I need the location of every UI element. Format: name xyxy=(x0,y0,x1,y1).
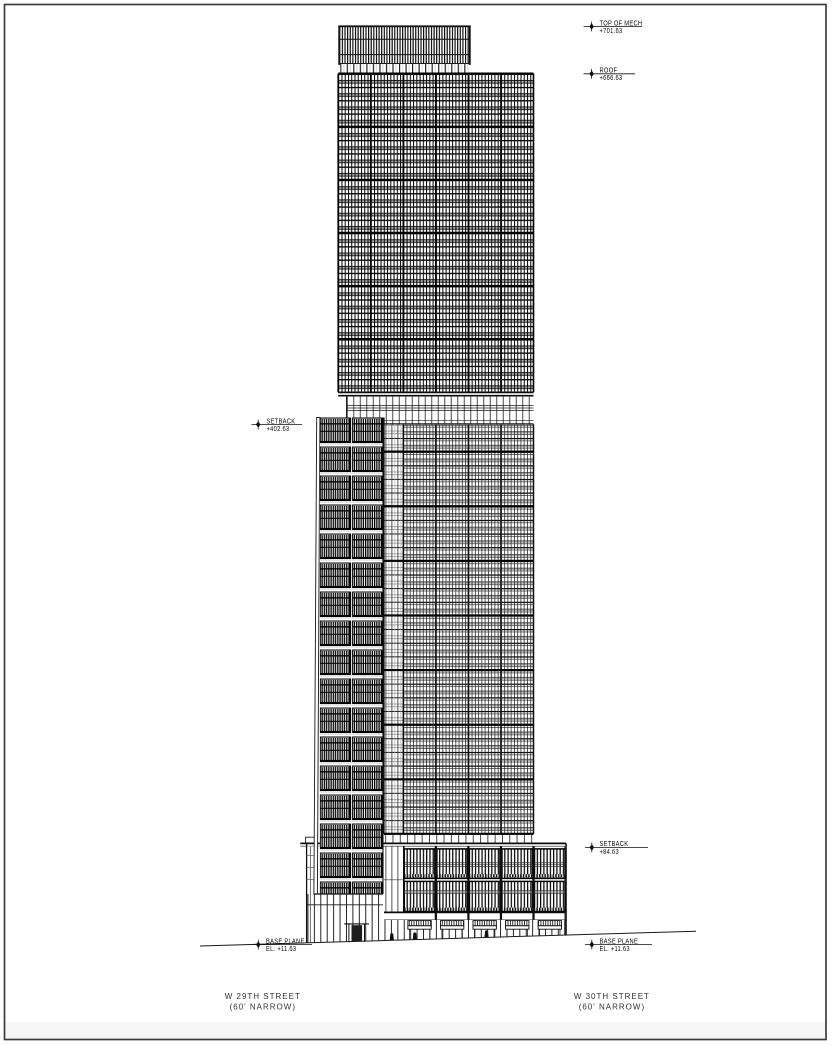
svg-text:+402.63: +402.63 xyxy=(267,425,290,433)
svg-text:EL. +11.63: EL. +11.63 xyxy=(600,945,630,953)
svg-text:(60' NARROW): (60' NARROW) xyxy=(230,1003,296,1012)
svg-text:EL. +11.63: EL. +11.63 xyxy=(266,945,296,953)
svg-text:+701.63: +701.63 xyxy=(600,27,623,35)
svg-text:+666.63: +666.63 xyxy=(600,75,623,83)
svg-text:W 30TH STREET: W 30TH STREET xyxy=(574,992,650,1001)
svg-text:(60' NARROW): (60' NARROW) xyxy=(579,1003,645,1012)
svg-text:+84.63: +84.63 xyxy=(600,848,619,856)
svg-text:W 29TH STREET: W 29TH STREET xyxy=(225,992,301,1001)
